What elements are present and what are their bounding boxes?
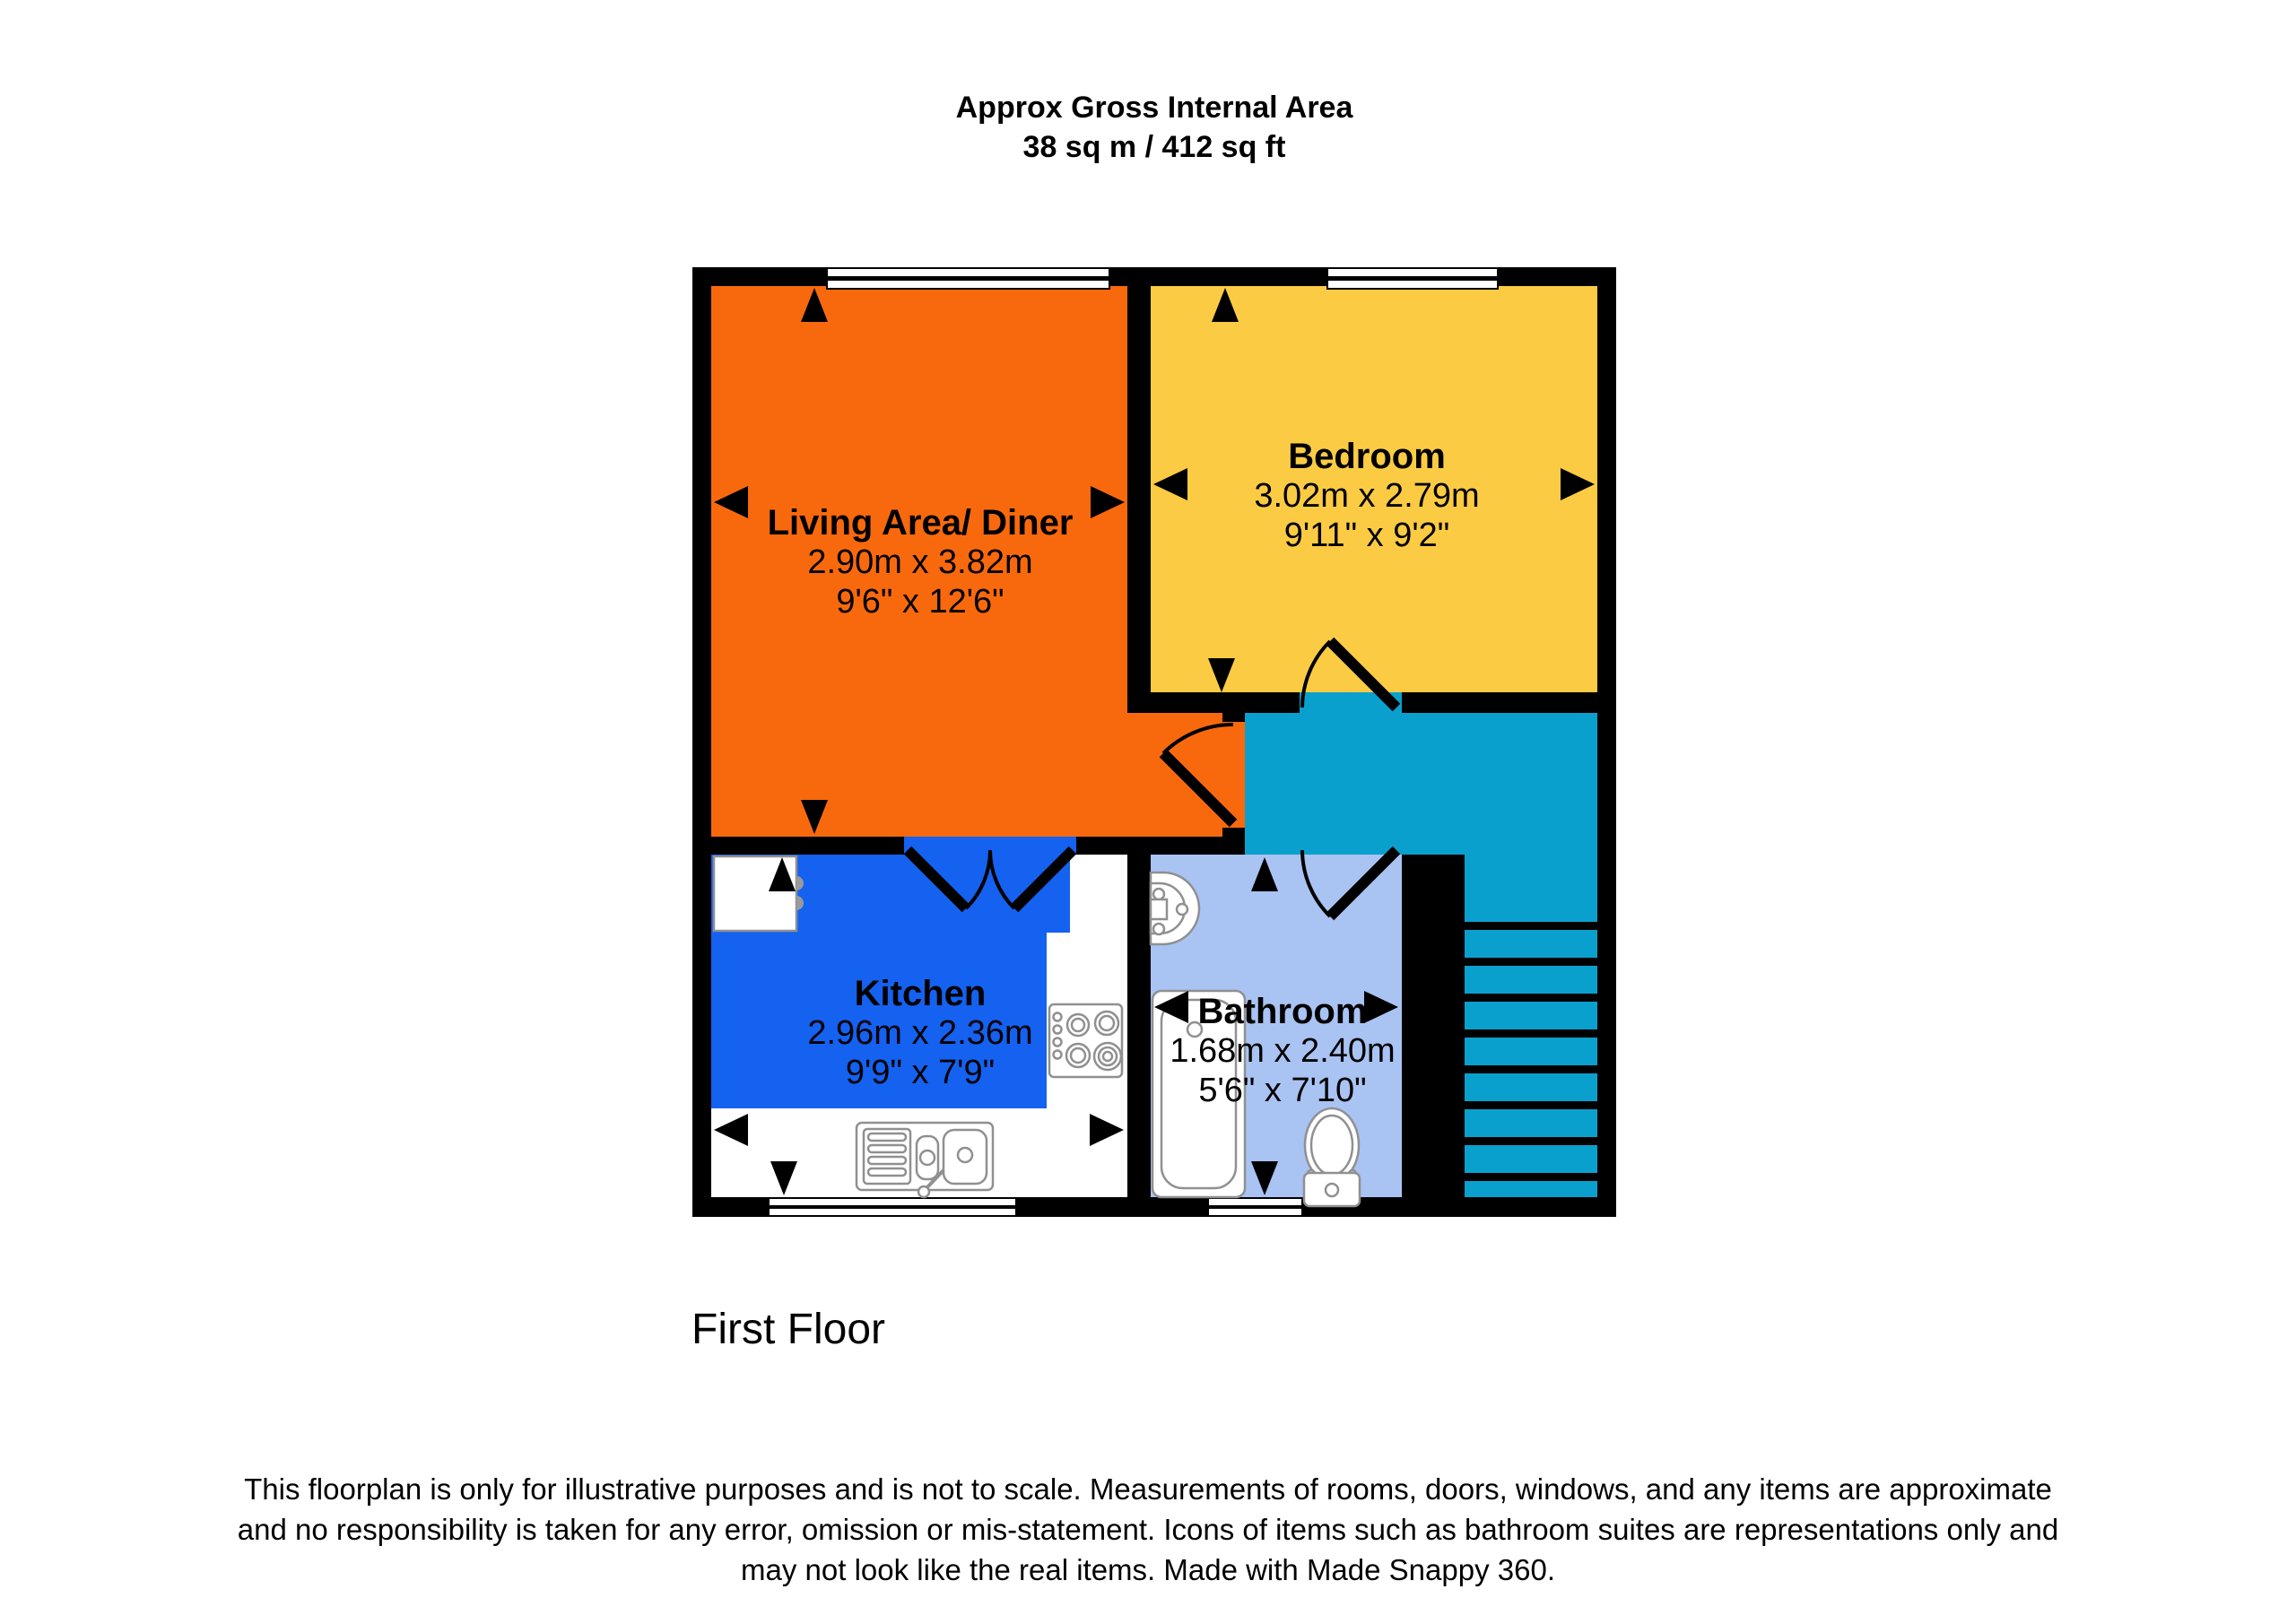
hallway — [1245, 713, 1597, 855]
room-size-imperial: 9'6" x 12'6" — [768, 582, 1074, 621]
disclaimer-line-1: This floorplan is only for illustrative … — [0, 1469, 2296, 1509]
room-size-imperial: 5'6" x 7'10" — [1170, 1071, 1395, 1110]
disclaimer-text: This floorplan is only for illustrative … — [0, 1469, 2296, 1590]
room-name: Living Area/ Diner — [768, 503, 1074, 543]
stair-landing — [1465, 855, 1597, 887]
room-size-imperial: 9'9" x 7'9" — [807, 1053, 1032, 1092]
floorplan — [0, 0, 2296, 1598]
bathroom-label: Bathroom 1.68m x 2.40m 5'6" x 7'10" — [1170, 992, 1395, 1110]
room-name: Kitchen — [807, 974, 1032, 1013]
living-room-label: Living Area/ Diner 2.90m x 3.82m 9'6" x … — [768, 503, 1074, 621]
kitchen-window — [769, 1198, 1016, 1216]
disclaimer-line-3: may not look like the real items. Made w… — [0, 1550, 2296, 1590]
living-window — [827, 268, 1109, 289]
bathroom-window — [1208, 1198, 1302, 1216]
bedroom-label: Bedroom 3.02m x 2.79m 9'11" x 9'2" — [1254, 437, 1479, 555]
room-size-metric: 3.02m x 2.79m — [1254, 476, 1479, 516]
kitchen-label: Kitchen 2.96m x 2.36m 9'9" x 7'9" — [807, 974, 1032, 1092]
room-size-metric: 2.90m x 3.82m — [768, 543, 1074, 582]
staircase — [1465, 887, 1597, 1197]
bedroom-window — [1327, 268, 1498, 289]
floor-name: First Floor — [691, 1305, 885, 1354]
room-size-metric: 2.96m x 2.36m — [807, 1013, 1032, 1053]
room-size-imperial: 9'11" x 9'2" — [1254, 516, 1479, 555]
room-name: Bedroom — [1254, 437, 1479, 476]
kitchen-sink-icon — [857, 1123, 993, 1197]
hob-icon — [1049, 1004, 1122, 1077]
toilet-icon — [1304, 1108, 1360, 1206]
room-name: Bathroom — [1170, 992, 1395, 1031]
bathroom-doorway — [1300, 837, 1402, 855]
disclaimer-line-2: and no responsibility is taken for any e… — [0, 1509, 2296, 1550]
room-size-metric: 1.68m x 2.40m — [1170, 1031, 1395, 1071]
stair-flight — [1465, 887, 1597, 1197]
appliance-icon — [714, 856, 804, 931]
